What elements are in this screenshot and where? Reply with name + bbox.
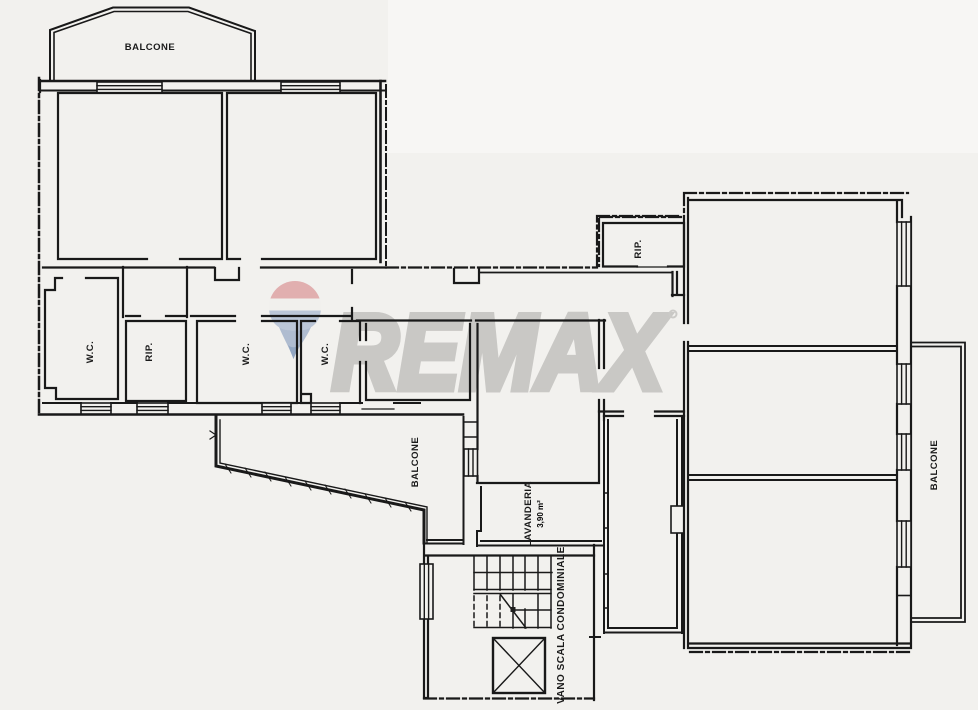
svg-text:REMAX: REMAX xyxy=(332,292,669,412)
svg-text:BALCONE: BALCONE xyxy=(125,42,175,53)
svg-text:BALCONE: BALCONE xyxy=(929,440,940,490)
svg-text:RIP.: RIP. xyxy=(633,239,644,258)
svg-text:LAVANDERIA: LAVANDERIA xyxy=(523,481,534,547)
svg-text:W.C.: W.C. xyxy=(320,343,331,366)
svg-text:W.C.: W.C. xyxy=(85,341,96,364)
svg-text:BALCONE: BALCONE xyxy=(410,437,421,487)
svg-text:RIP.: RIP. xyxy=(144,342,155,361)
svg-text:VANO SCALA CONDOMINIALE: VANO SCALA CONDOMINIALE xyxy=(556,546,567,704)
svg-text:W.C.: W.C. xyxy=(241,343,252,366)
svg-text:3,90 m²: 3,90 m² xyxy=(536,500,545,528)
